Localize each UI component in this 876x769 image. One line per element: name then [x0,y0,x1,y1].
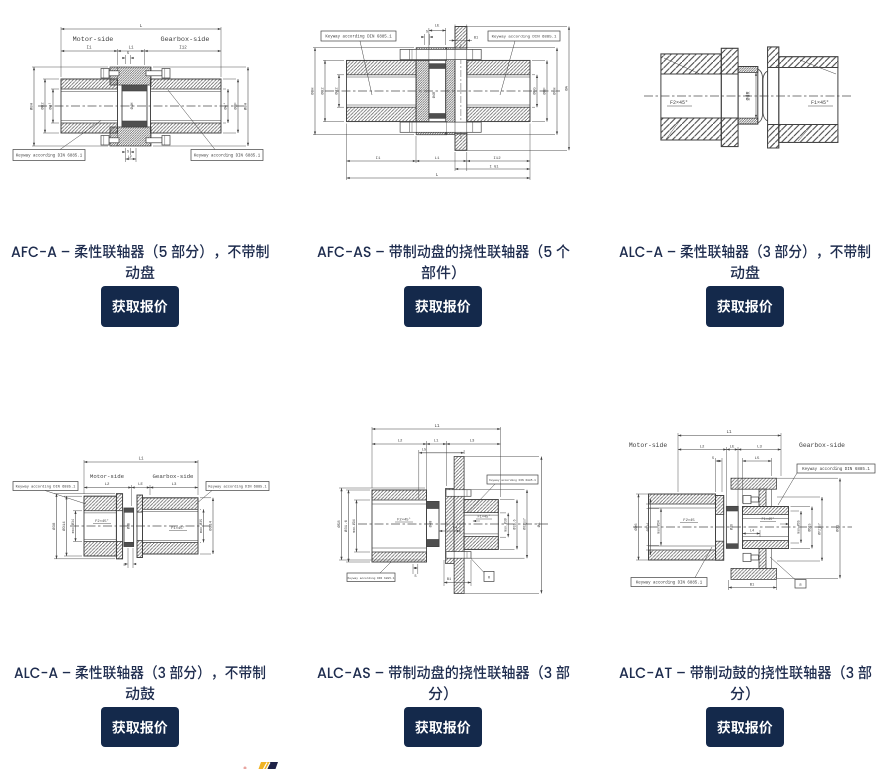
svg-text:I1: I1 [86,47,92,51]
svg-text:F2×45°: F2×45° [397,518,411,523]
svg-text:L5: L5 [422,449,427,453]
svg-text:L4: L4 [453,527,458,531]
svg-text:L2: L2 [700,446,705,450]
svg-text:Keyway according DIN 6885.1: Keyway according DIN 6885.1 [208,485,266,490]
svg-text:Ø38: Ø38 [52,522,57,530]
svg-text:ØP2js7: ØP2js7 [818,523,822,535]
svg-text:F1×45°: F1×45° [811,100,829,106]
svg-text:L1: L1 [435,157,440,161]
svg-text:Gearbox-side: Gearbox-side [799,442,845,449]
svg-text:L5: L5 [755,457,760,461]
svg-text:ØD1: ØD1 [836,524,841,532]
svg-text:R: R [488,577,490,581]
svg-text:I G1: I G1 [489,166,499,170]
svg-text:LE: LE [730,446,735,450]
svg-text:Gearbox-side: Gearbox-side [153,473,195,480]
svg-text:F1×45°: F1×45° [762,517,775,522]
svg-text:L: L [140,23,143,29]
svg-text:ØD15: ØD15 [808,523,813,531]
svg-text:ØB2: ØB2 [321,87,326,95]
svg-text:B1: B1 [474,37,478,41]
svg-text:F2×45°: F2×45° [95,519,109,524]
svg-text:Ø4R: Ø4R [432,91,437,98]
svg-text:L1: L1 [434,440,439,444]
svg-text:ØD14: ØD14 [62,521,67,531]
svg-text:S: S [127,151,130,155]
svg-text:max.Ø35: max.Ø35 [199,519,204,533]
svg-text:Motor-side: Motor-side [629,442,668,449]
svg-text:L4: L4 [750,530,754,534]
svg-text:S: S [414,575,416,579]
svg-text:ØBH: ØBH [244,102,249,110]
svg-text:LE: LE [435,25,440,29]
svg-text:Keyway according DIN 6885.1: Keyway according DIN 6885.1 [16,154,83,159]
svg-text:B1: B1 [750,584,755,588]
svg-text:LF: LF [128,156,132,160]
svg-text:max.ØD5: max.ØD5 [797,520,801,533]
svg-text:L1: L1 [726,431,732,435]
svg-text:Ø62js7: Ø62js7 [523,518,527,530]
svg-text:max.Ø39: max.Ø39 [504,518,508,531]
svg-text:L3: L3 [470,440,475,444]
svg-text:Ø31.6: Ø31.6 [344,519,349,532]
svg-text:Ø31.6: Ø31.6 [513,519,518,529]
svg-text:ØBH: ØBH [553,87,558,95]
svg-text:ØD6: ØD6 [634,523,639,531]
svg-text:F2×45°: F2×45° [670,100,688,106]
svg-text:Ø4H: Ø4H [130,103,135,110]
svg-text:L2: L2 [105,483,110,487]
svg-text:max.Ø34: max.Ø34 [71,519,76,533]
svg-text:ØBH: ØBH [311,87,316,95]
svg-text:Keyway according DIN 6885.1: Keyway according DIN 6885.1 [492,35,557,40]
svg-text:Øe°: Øe° [224,102,229,109]
svg-text:Keyway according DIN 6885.1: Keyway according DIN 6885.1 [636,581,703,586]
svg-text:ØB2: ØB2 [41,102,46,110]
svg-text:ØD14: ØD14 [646,523,651,532]
svg-text:ØD14: ØD14 [209,521,214,531]
svg-text:Keyway according DIN 6885.1: Keyway according DIN 6885.1 [194,154,261,159]
svg-text:max.ØD4: max.ØD4 [352,519,356,532]
svg-text:Ød²: Ød² [48,102,54,109]
svg-text:ØdB: ØdB [126,523,131,529]
svg-text:S: S [123,564,125,568]
svg-text:L: L [436,174,439,178]
svg-text:LE: LE [138,483,143,487]
svg-text:I12: I12 [493,157,501,161]
svg-text:R: R [799,584,801,588]
svg-text:L2: L2 [398,440,403,444]
svg-text:L1: L1 [128,47,134,51]
svg-text:Keyway according DIN 6885.1: Keyway according DIN 6885.1 [489,478,536,482]
svg-text:Keyway according DIN 6885.1: Keyway according DIN 6885.1 [802,467,870,472]
svg-text:F1×45°: F1×45° [171,526,185,531]
svg-text:ØBF: ØBF [234,102,239,110]
svg-text:ØBH: ØBH [30,102,35,110]
svg-text:ØBF: ØBF [543,87,548,95]
svg-text:L1: L1 [138,458,144,462]
svg-text:Ød2: Ød2 [335,87,340,95]
svg-text:Ø6G: Ø6G [533,87,538,95]
svg-text:B1: B1 [447,578,451,582]
svg-text:max.ØD4: max.ØD4 [657,520,661,533]
svg-text:ØA: ØA [537,522,542,527]
svg-text:S: S [426,31,428,35]
svg-text:L3: L3 [172,483,177,487]
svg-text:Ø58: Ø58 [337,520,342,528]
svg-text:I1: I1 [376,157,381,161]
svg-text:L3: L3 [757,446,762,450]
svg-text:Keyway according DIN 6885.1: Keyway according DIN 6885.1 [325,35,392,40]
svg-text:Motor-side: Motor-side [73,36,114,44]
svg-text:Gearbox-side: Gearbox-side [161,36,210,44]
svg-text:Keyway according DIN 6885.1: Keyway according DIN 6885.1 [16,485,77,490]
svg-text:Motor-side: Motor-side [90,473,125,480]
svg-text:F2×45: F2×45 [683,518,695,523]
svg-text:Keyway according DIN 6885.1: Keyway according DIN 6885.1 [348,576,395,580]
svg-text:S: S [712,457,714,461]
svg-text:ØdR: ØdR [745,91,752,100]
svg-text:ØA: ØA [565,85,570,90]
svg-text:I12: I12 [179,47,187,51]
svg-text:S: S [127,52,130,56]
svg-text:Ø48: Ø48 [429,520,434,528]
svg-text:Ød8: Ød8 [730,524,735,530]
svg-text:L1: L1 [434,425,440,429]
svg-text:F1×45°: F1×45° [478,515,491,520]
